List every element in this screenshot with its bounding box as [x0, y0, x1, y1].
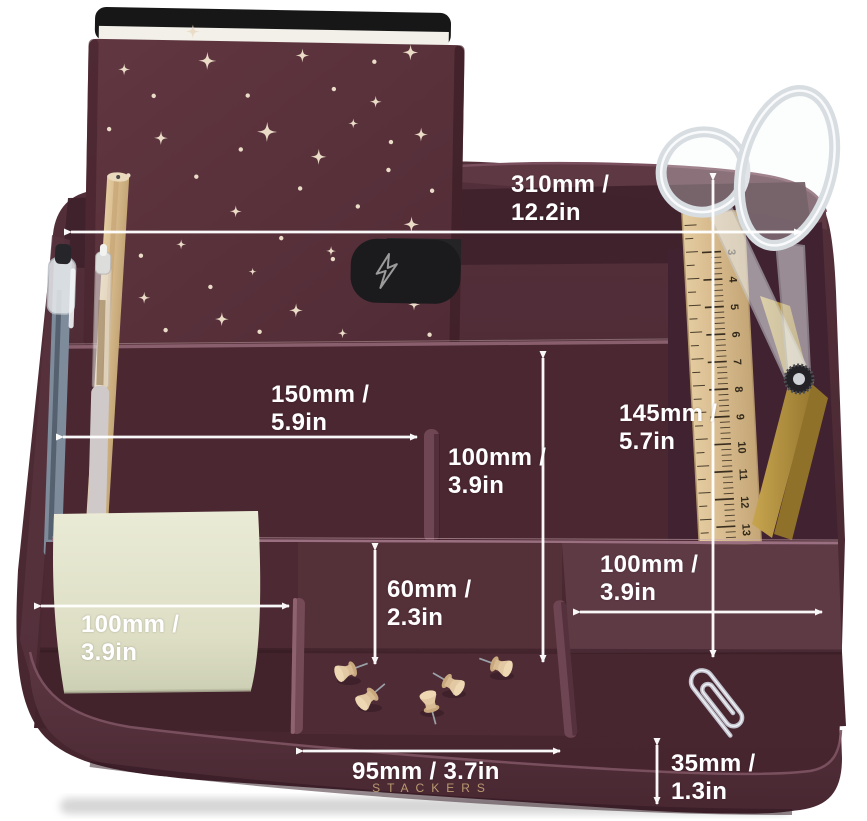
product-photo-desk-organizer: 345678910111213 — [0, 0, 867, 821]
brand-logo-text: STACKERS — [352, 781, 512, 795]
dimension-arrows — [0, 0, 867, 821]
